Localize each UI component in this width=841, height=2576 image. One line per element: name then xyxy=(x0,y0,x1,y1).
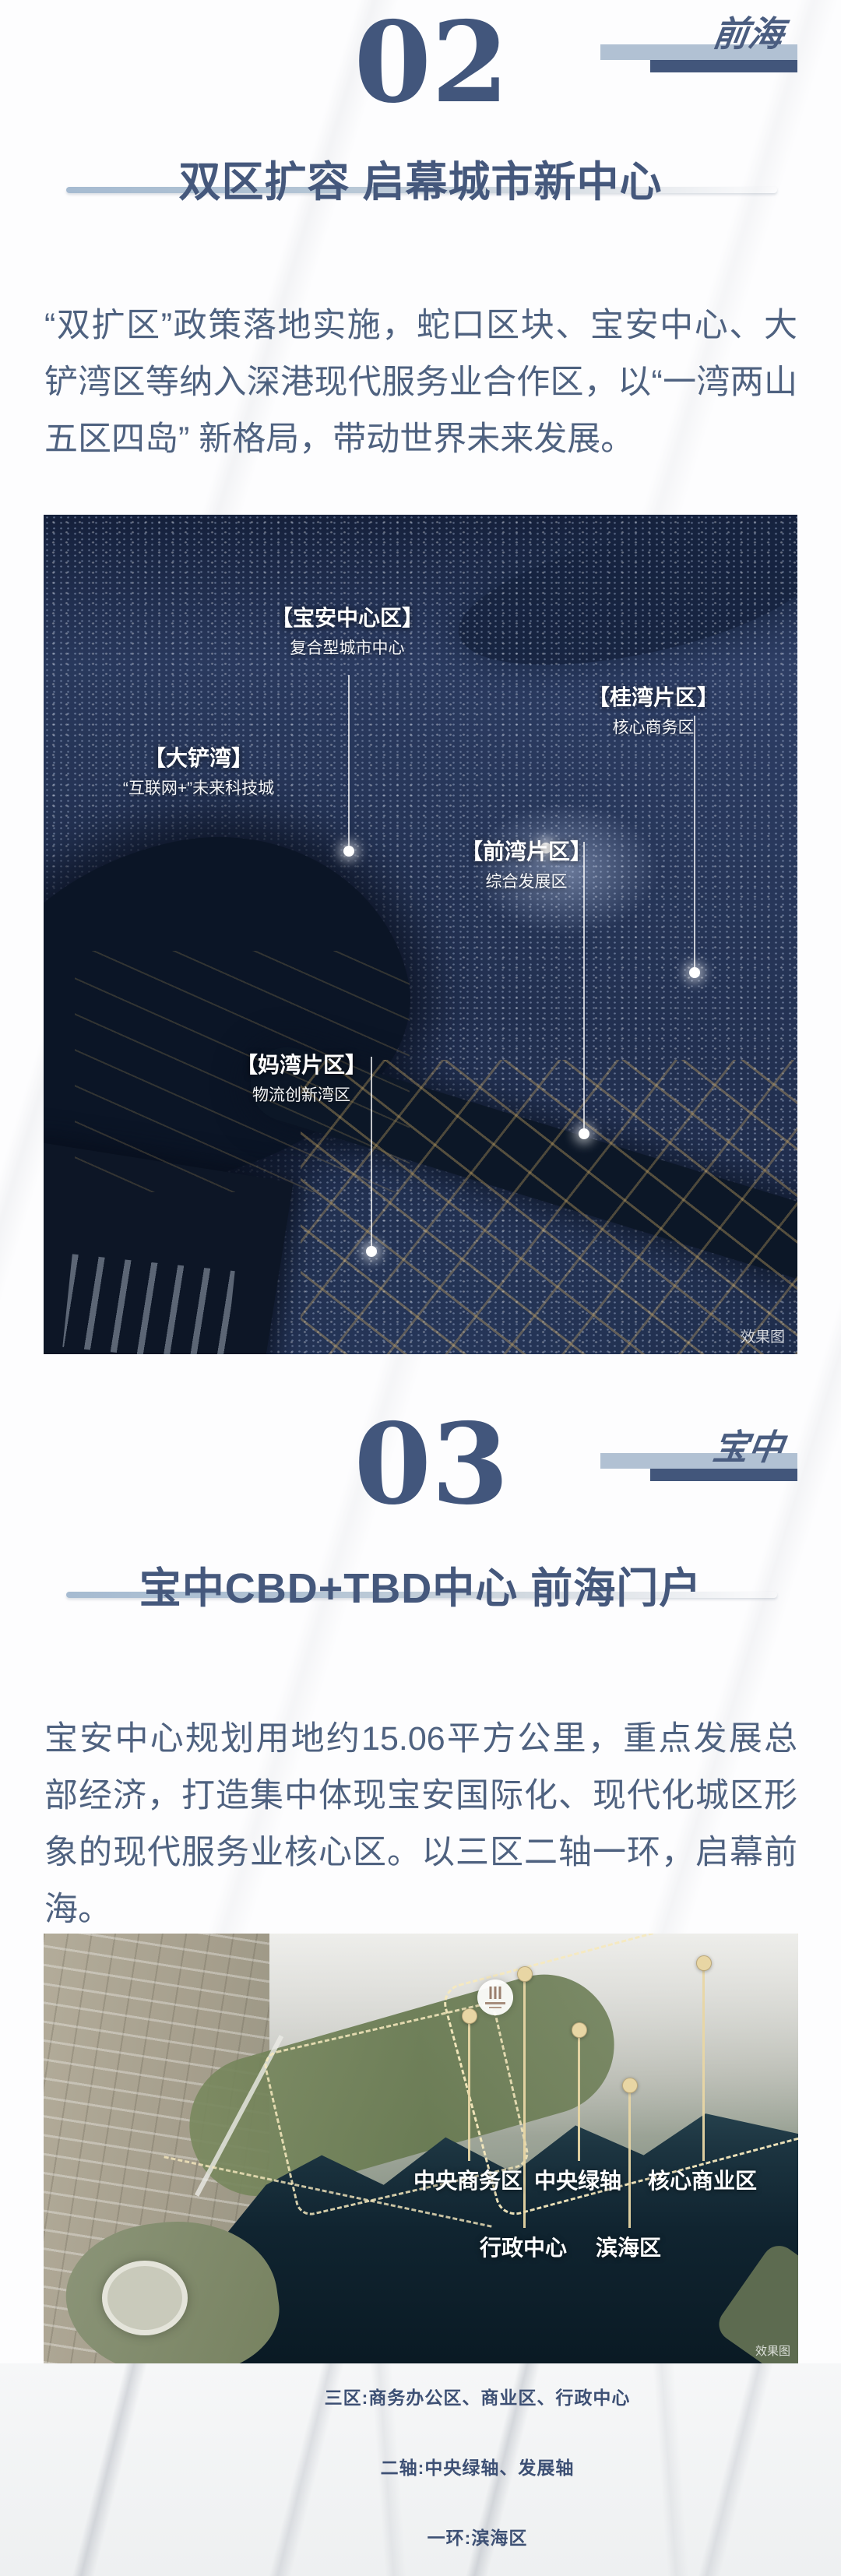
zone-label-green-axis: 中央绿轴 xyxy=(534,2164,621,2195)
section2-paragraph: “双扩区”政策落地实施，蛇口区块、宝安中心、大铲湾区等纳入深港现代服务业合作区，… xyxy=(44,297,797,468)
zone-label-admin-center: 行政中心 xyxy=(480,2231,567,2262)
leader-line-baoan xyxy=(348,675,350,851)
section3-title: 宝中CBD+TBD中心 前海门户 xyxy=(0,1564,841,1614)
leader-line-coastal xyxy=(628,2085,631,2228)
leader-dot xyxy=(462,2008,477,2024)
rendering-watermark: 效果图 xyxy=(755,2342,790,2359)
section-tag-qianhai: 前海 xyxy=(711,16,786,51)
leader-dot xyxy=(343,846,354,857)
leader-line-core-business xyxy=(702,1963,705,2161)
note-three-zones: 三区:商务办公区、商业区、行政中心 xyxy=(0,2384,841,2411)
developer-logo-badge xyxy=(477,1980,513,2015)
section2-title: 双区扩容 启幕城市新中心 xyxy=(0,157,841,207)
leader-dot xyxy=(689,967,700,978)
leader-line-cbd xyxy=(468,2016,470,2161)
section-tag-baozhong: 宝中 xyxy=(711,1430,786,1465)
photo2-stadium xyxy=(102,2261,188,2335)
logo-building-icon xyxy=(490,1987,501,1999)
leader-dot xyxy=(696,1955,712,1971)
district-label-guiwan: 【桂湾片区】 核心商务区 xyxy=(588,684,719,738)
leader-dot xyxy=(579,1128,589,1139)
night-aerial-rendering-image[interactable]: 【宝安中心区】 复合型城市中心 【桂湾片区】 核心商务区 【大铲湾】 “互联网+… xyxy=(44,515,797,1354)
article-page: 02 前海 双区扩容 启幕城市新中心 “双扩区”政策落地实施，蛇口区块、宝安中心… xyxy=(0,0,841,2576)
daytime-aerial-rendering-image[interactable]: 中央商务区 中央绿轴 核心商业区 行政中心 滨海区 效果图 xyxy=(44,1934,798,2363)
logo-text-line xyxy=(489,2007,501,2008)
tag-bar-dark xyxy=(650,1469,797,1481)
photo1-pier-strips xyxy=(62,1254,234,1354)
zone-label-coastal: 滨海区 xyxy=(596,2231,661,2262)
zone-label-core-business: 核心商业区 xyxy=(648,2164,757,2195)
district-label-qianwan: 【前湾片区】 综合发展区 xyxy=(461,839,592,892)
leader-dot xyxy=(366,1246,377,1257)
section3-paragraph: 宝安中心规划用地约15.06平方公里，重点发展总部经济，打造集中体现宝安国际化、… xyxy=(44,1711,797,1938)
leader-dot xyxy=(517,1966,533,1982)
note-one-ring: 一环:滨海区 xyxy=(0,2525,841,2551)
zone-label-cbd: 中央商务区 xyxy=(413,2164,523,2195)
tag-bar-dark xyxy=(650,60,797,72)
rendering-watermark: 效果图 xyxy=(741,1325,785,1346)
district-label-baoan-center: 【宝安中心区】 复合型城市中心 xyxy=(271,605,424,659)
logo-text-line xyxy=(485,2002,505,2004)
leader-line-admin-center xyxy=(523,1974,526,2228)
leader-line-green-axis xyxy=(578,2030,580,2161)
district-label-mawan: 【妈湾片区】 物流创新湾区 xyxy=(236,1052,367,1106)
leader-line-guiwan xyxy=(694,716,695,973)
leader-dot xyxy=(572,2022,587,2038)
leader-line-mawan xyxy=(371,1057,372,1251)
leader-dot xyxy=(622,2078,638,2093)
district-label-dachanwan: 【大铲湾】 “互联网+”未来科技城 xyxy=(123,745,274,799)
note-two-axes: 二轴:中央绿轴、发展轴 xyxy=(0,2455,841,2481)
